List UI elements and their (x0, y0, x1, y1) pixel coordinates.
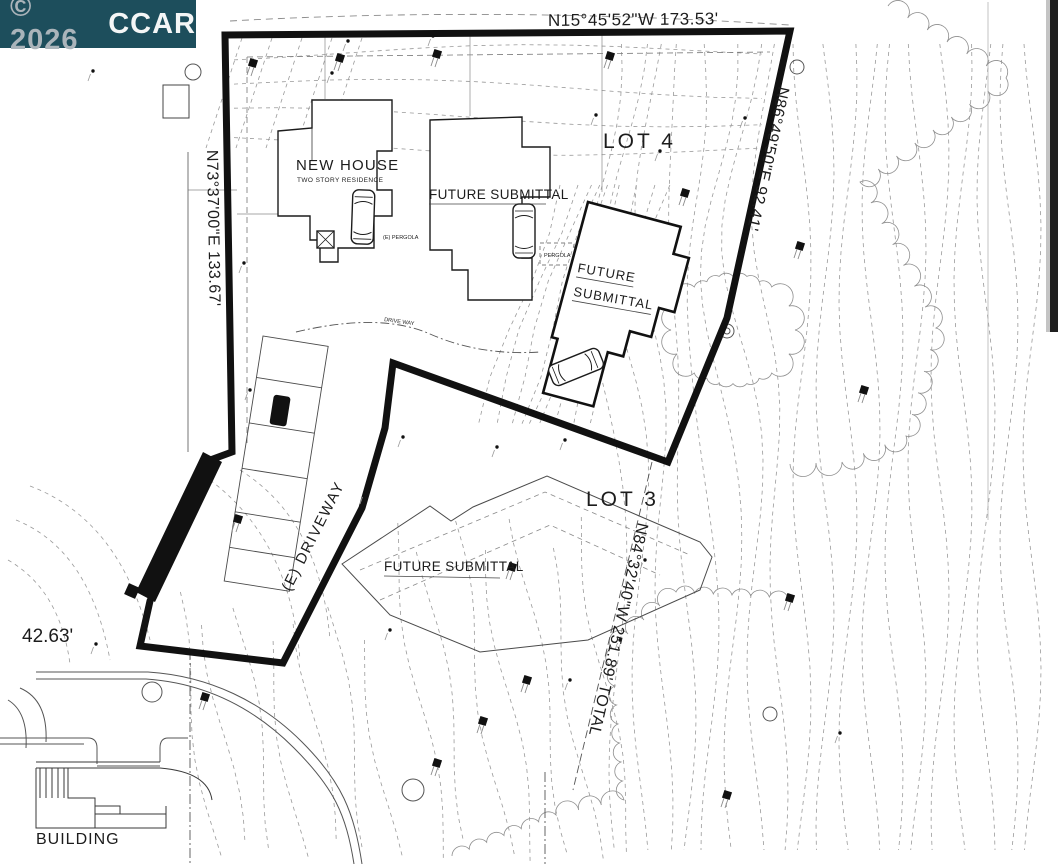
watermark-brand: CCAR (108, 8, 196, 41)
utility-circle (185, 64, 201, 80)
contour-line (1000, 44, 1018, 850)
contour-line (8, 560, 70, 664)
contour-line (233, 608, 269, 848)
spot-elevation-tick (327, 76, 330, 83)
spot-elevation-tick (835, 736, 838, 743)
contour-line (635, 44, 673, 850)
survey-point (563, 438, 566, 441)
contour-line (240, 470, 330, 640)
survey-point (568, 678, 571, 681)
bearing-right: N86°49'50"E 92.41' (743, 85, 791, 232)
driveway-label: (E) DRIVEWAY (278, 479, 348, 594)
contour-line (273, 641, 308, 857)
spot-elevation-tick (784, 601, 791, 611)
spot-elevation-tick (604, 59, 611, 69)
bearing-top: N15°45'52"W 173.53' (548, 9, 719, 30)
survey-point (594, 113, 597, 116)
contour-line (908, 44, 926, 850)
survey-point (91, 69, 94, 72)
dim-left-label: 42.63' (22, 626, 73, 647)
contour-line (816, 44, 834, 850)
survey-point (431, 34, 434, 37)
spot-elevation-tick (88, 74, 91, 81)
utility-circle (402, 779, 424, 801)
spot-elevation-tick (431, 57, 438, 67)
survey-point (94, 642, 97, 645)
contour-line (236, 38, 272, 148)
new-house-label: NEW HOUSE (296, 157, 399, 174)
spot-elevation-tick (721, 798, 728, 808)
neighbor-building-outline (36, 762, 212, 828)
site-plan-svg: N15°45'52"W 173.53' N86°49'50"E 92.41' N… (0, 0, 1058, 864)
spot-elevation-tick (492, 450, 495, 457)
survey-point (363, 492, 366, 495)
utility-circle (142, 682, 162, 702)
survey-point (330, 71, 333, 74)
site-plan-page: N15°45'52"W 173.53' N86°49'50"E 92.41' N… (0, 0, 1058, 864)
survey-point (401, 435, 404, 438)
survey-point (743, 116, 746, 119)
retaining-wall (136, 452, 222, 602)
contour-line (931, 44, 949, 850)
utility-circle (790, 60, 804, 74)
survey-point (495, 445, 498, 448)
contour-line (687, 44, 719, 850)
contour-line (862, 44, 880, 850)
spot-elevation-tick (398, 440, 401, 447)
spot-elevation-tick (343, 44, 346, 51)
spot-elevation-tick (858, 393, 865, 403)
spot-elevation-tick (560, 443, 563, 450)
spot-elevation-tick (794, 249, 801, 259)
contour-line (839, 44, 857, 850)
future-lot3-label: FUTURE SUBMITTAL (384, 559, 524, 574)
spot-elevation-tick (679, 196, 686, 206)
contour-line (234, 79, 762, 98)
survey-point (388, 628, 391, 631)
watermark-copyright: © 2026 (10, 0, 100, 57)
spot-elevation-tick (91, 647, 94, 654)
contour-line (328, 607, 362, 847)
contour-line (793, 44, 811, 850)
contour-line (293, 624, 336, 840)
neighbor-building-label: BUILDING (36, 831, 120, 848)
spot-elevation-tick (521, 683, 528, 693)
survey-point (838, 731, 841, 734)
spot-elevation-tick (334, 61, 341, 71)
spot-elevation-tick (239, 266, 242, 273)
contour-line (416, 552, 463, 840)
spot-elevation-tick (591, 118, 594, 125)
watermark-banner: © 2026 CCAR (0, 0, 196, 48)
contour-line (700, 44, 741, 850)
drive-way-path-label: DRIVE WAY (384, 317, 415, 327)
spot-elevation-tick (431, 766, 438, 776)
contour-line (954, 44, 972, 850)
spot-elevation-tick (565, 683, 568, 690)
bearing-left: N73°37'00"E 133.67' (203, 150, 223, 307)
contour-line (180, 592, 221, 856)
spot-elevation-tick (247, 66, 254, 76)
spot-elevation-tick (740, 121, 743, 128)
car-plan-view (513, 204, 535, 258)
contour-line (365, 640, 403, 856)
contour-line (1023, 44, 1041, 850)
wall-end-post (124, 583, 140, 599)
label-underline (384, 576, 500, 578)
tree-canopy-outlines (452, 0, 1008, 856)
utility-circle (763, 707, 777, 721)
car-plan-view (351, 190, 375, 245)
contour-line (885, 44, 903, 850)
spot-elevation-tick (428, 39, 431, 46)
spot-elevation-tick (655, 154, 658, 161)
survey-point (248, 388, 251, 391)
contour-line (977, 44, 995, 850)
spot-elevation-tick (385, 633, 388, 640)
contour-line (30, 486, 150, 640)
survey-point (346, 39, 349, 42)
pergola-left-label: (E) PERGOLA (383, 235, 419, 241)
new-house-sub-label: TWO STORY RESIDENCE (297, 177, 384, 184)
lot3-label: LOT 3 (586, 488, 659, 511)
future-mid-label: FUTURE SUBMITTAL (429, 187, 569, 202)
building-future-lot4 (537, 202, 696, 420)
lot4-label: LOT 4 (603, 130, 676, 153)
pergola-right-label: PERGOLA (544, 253, 571, 259)
spot-elevation-tick (199, 700, 206, 710)
survey-point (242, 261, 245, 264)
contour-line (234, 45, 762, 60)
contour-line (485, 550, 530, 862)
building-future-mid (430, 117, 574, 300)
bearing-lot3: N84°32'40"W 251.89' TOTAL (585, 521, 651, 738)
